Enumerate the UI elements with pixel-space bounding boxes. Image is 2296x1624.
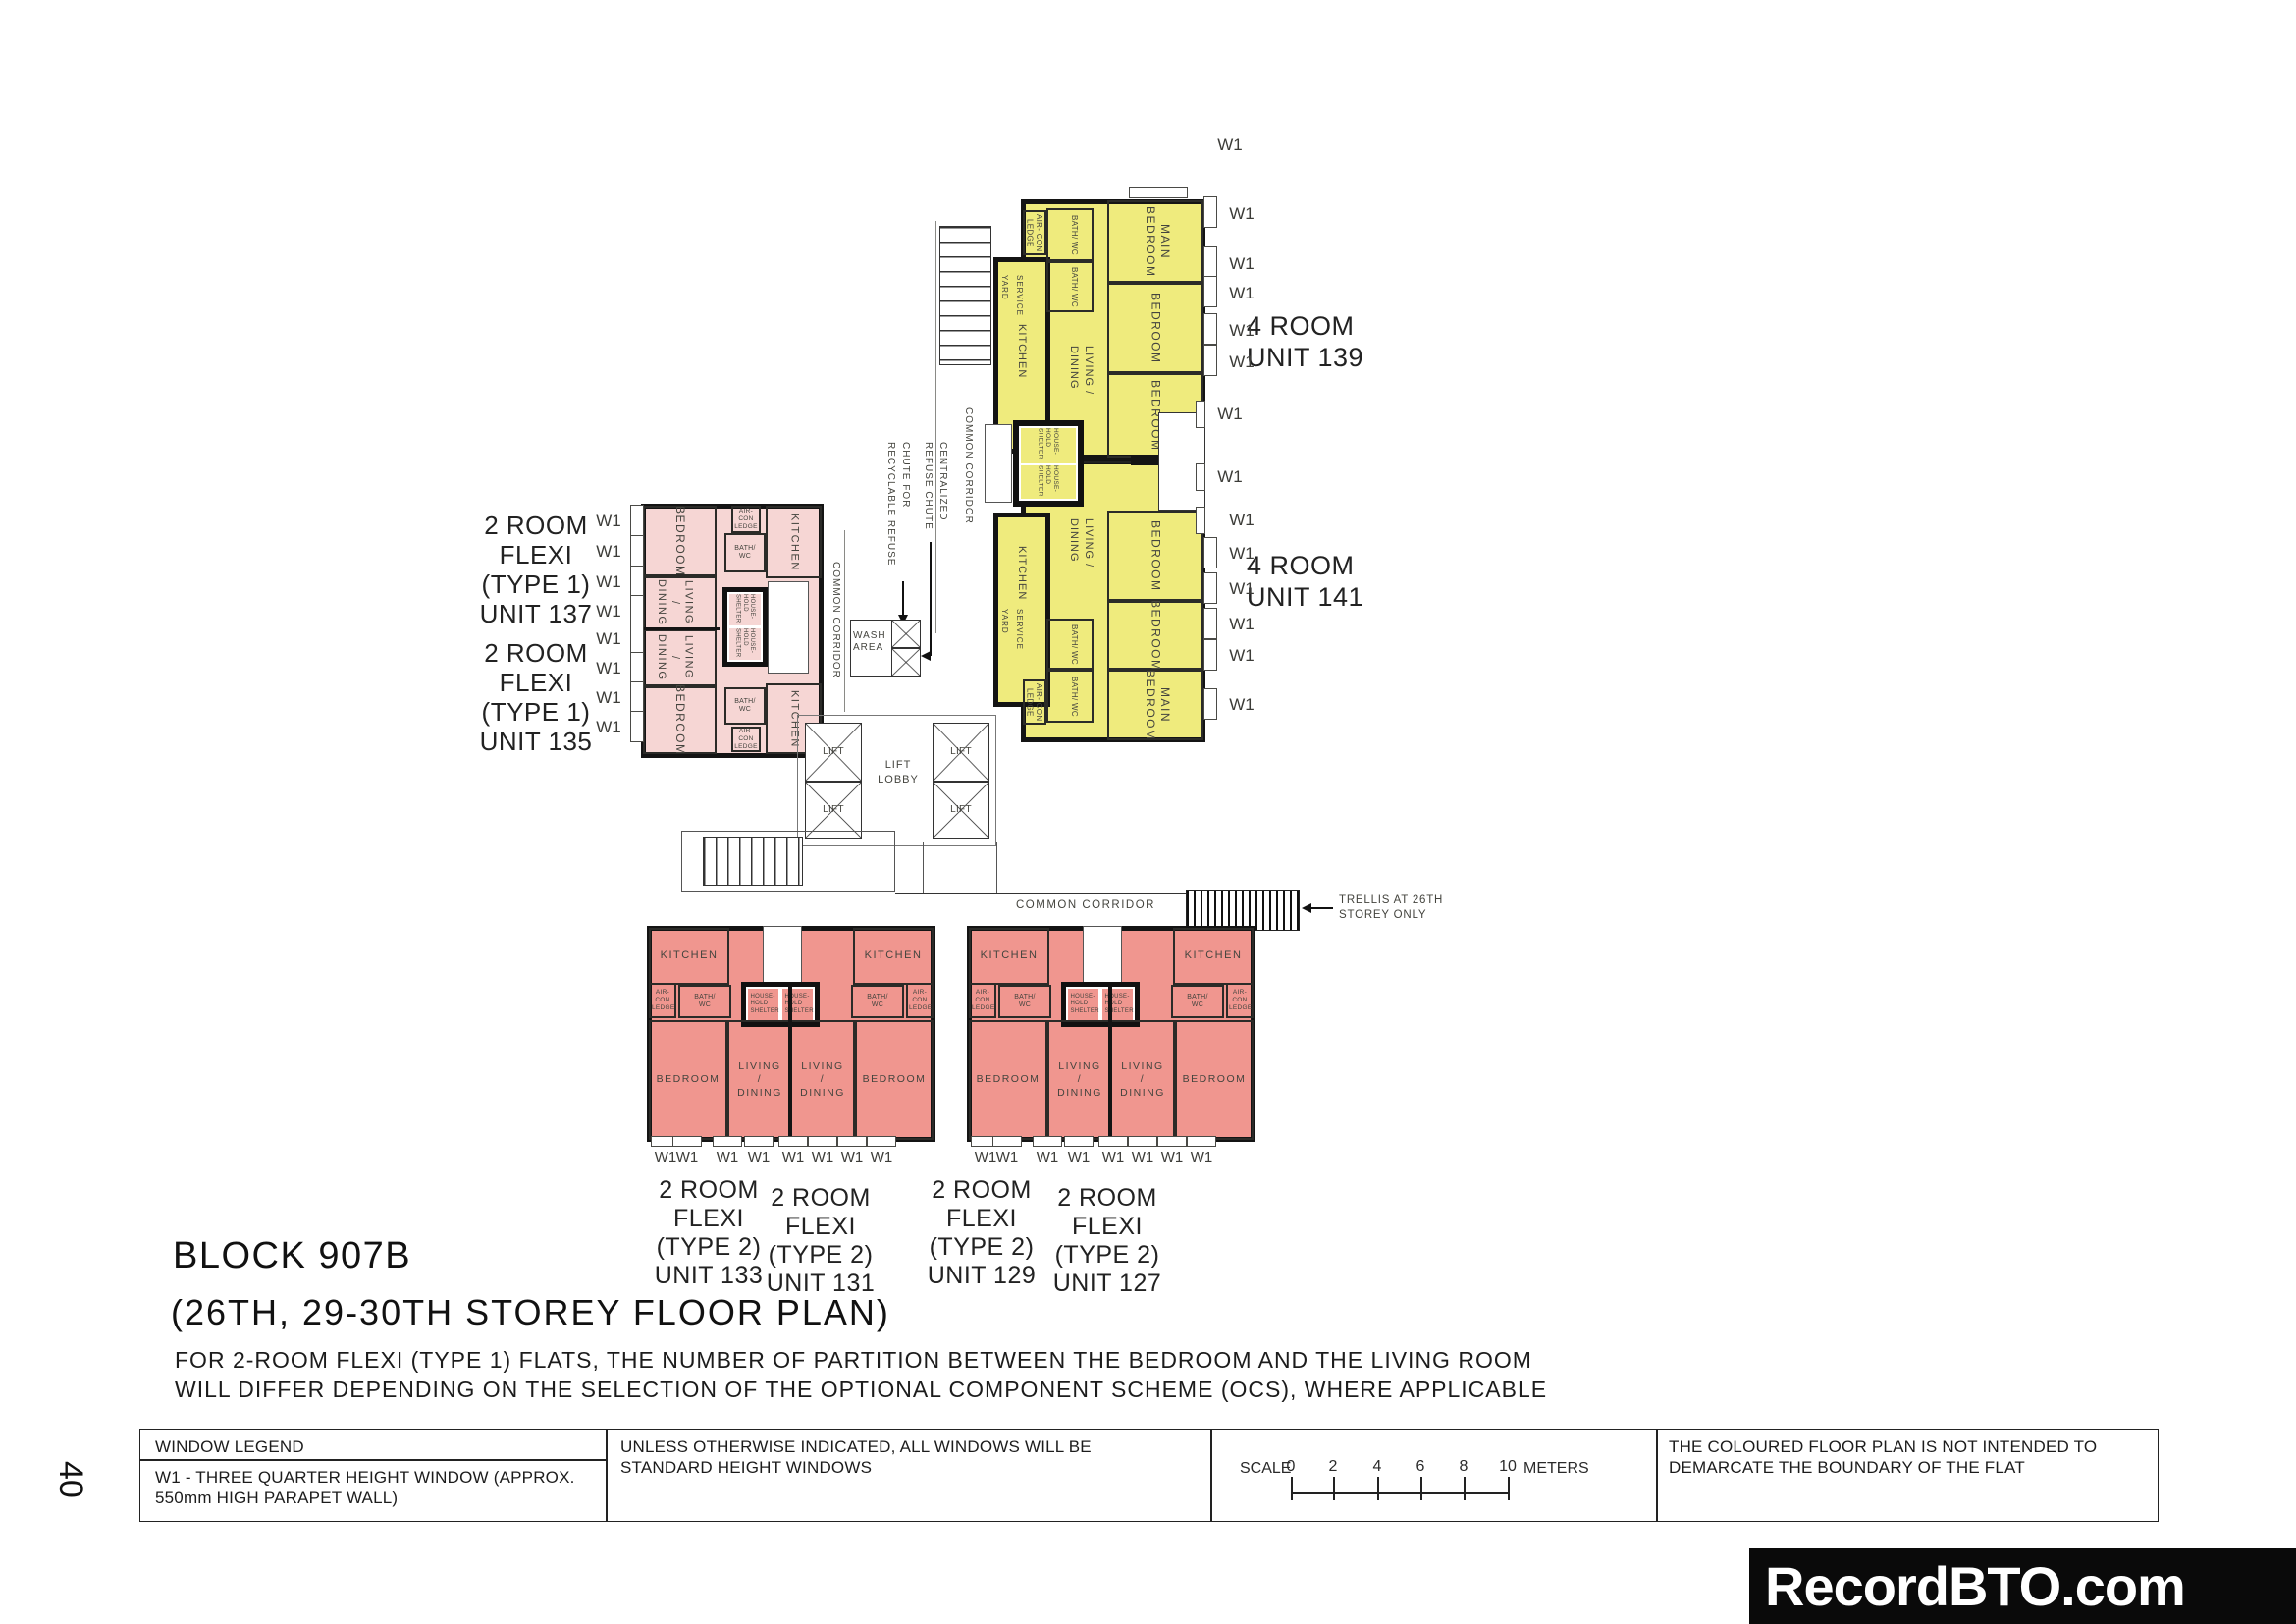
window-marker	[1203, 639, 1217, 671]
room-aircon-ledge: AIR- CON LEDGE	[1023, 679, 1046, 725]
wash-area-label: WASH AREA	[853, 630, 894, 654]
window-marker	[837, 1136, 867, 1147]
w1-label: W1	[1213, 405, 1247, 424]
scale-tick-10: 10	[1496, 1458, 1520, 1476]
household-shelter-label: HOUSE- HOLD SHELTER	[1071, 994, 1096, 1015]
room-kitchen: KITCHEN	[1173, 928, 1254, 985]
room-bedroom: BEDROOM	[1107, 511, 1203, 601]
scale-bar-tick	[1420, 1477, 1422, 1500]
unit-139-type: 4 ROOM	[1247, 310, 1363, 342]
legend-divider	[1210, 1429, 1212, 1522]
bedroom-label: BEDROOM	[863, 1073, 927, 1086]
w1-label: W1	[592, 718, 625, 737]
room-living-dining: LIVING / DINING	[643, 629, 717, 686]
window-marker	[1203, 688, 1217, 720]
bedroom-label: BEDROOM	[1148, 293, 1163, 364]
page-number: 40	[51, 1461, 89, 1498]
bath-wc-label: BATH/ WC	[1011, 994, 1039, 1010]
window-marker	[1203, 345, 1217, 376]
w1-label: W1	[1225, 352, 1258, 372]
window-marker	[1157, 1136, 1187, 1147]
w1-label: W1	[1213, 467, 1247, 487]
w1-label: W1	[1126, 1149, 1159, 1165]
w1-label: W1	[711, 1149, 744, 1165]
scale-bar-tick	[1464, 1477, 1466, 1500]
w1-label: W1	[1031, 1149, 1064, 1165]
unit-133-label: 2 ROOM FLEXI (TYPE 2) UNIT 133	[645, 1176, 773, 1290]
bath-wc-label: BATH/ WC	[864, 994, 891, 1010]
living-dining-label: LIVING / DINING	[1054, 1060, 1105, 1099]
trellis-arrow	[1302, 903, 1311, 913]
unit-133-l2: FLEXI	[645, 1205, 773, 1233]
lift-lobby-label: LIFT LOBBY	[868, 758, 929, 787]
lift-shaft: LIFT	[933, 723, 989, 782]
bedroom-label: BEDROOM	[1183, 1073, 1247, 1086]
w1-label: W1	[592, 688, 625, 708]
partition-line	[1084, 461, 1135, 463]
window-marker	[992, 1136, 1022, 1147]
unit-133-l1: 2 ROOM	[645, 1176, 773, 1205]
unit-133-l4: UNIT 133	[645, 1262, 773, 1290]
household-shelter-block: HOUSE- HOLD SHELTER HOUSE- HOLD SHELTER	[1013, 420, 1084, 507]
unit-137-l1: 2 ROOM	[461, 511, 611, 540]
household-shelter: HOUSE- HOLD SHELTER	[1021, 465, 1076, 499]
window-marker	[867, 1136, 896, 1147]
w1-label: W1	[592, 572, 625, 592]
w1-label: W1	[1225, 615, 1258, 634]
unit-137-l4: UNIT 137	[461, 599, 611, 628]
bedroom-label: BEDROOM	[1148, 600, 1163, 672]
kitchen-label: KITCHEN	[1007, 546, 1029, 609]
window-marker	[630, 535, 644, 567]
w1-label: W1	[1225, 284, 1258, 303]
household-shelter-label: HOUSE- HOLD SHELTER	[1038, 465, 1059, 499]
ocs-note-line2: WILL DIFFER DEPENDING ON THE SELECTION O…	[175, 1377, 1547, 1403]
household-shelter: HOUSE- HOLD SHELTER	[1021, 428, 1076, 463]
entry-recess	[1083, 926, 1122, 987]
w1-label: W1	[592, 659, 625, 678]
watermark-banner: RecordBTO.com	[1749, 1548, 2296, 1624]
room-kitchen: KITCHEN	[853, 928, 934, 985]
common-corridor-label: COMMON CORRIDOR	[1016, 899, 1158, 911]
lift-label: LIFT	[950, 746, 972, 758]
w1-label: W1	[865, 1149, 898, 1165]
household-shelter: HOUSE- HOLD SHELTER	[729, 594, 761, 625]
w1-label: W1	[835, 1149, 869, 1165]
aircon-ledge-label: AIR- CON LEDGE	[652, 989, 673, 1011]
w1-label: W1	[1062, 1149, 1095, 1165]
room-bedroom: BEDROOM	[855, 1020, 934, 1140]
window-marker	[1203, 196, 1217, 228]
window-marker	[630, 505, 644, 536]
room-bedroom: BEDROOM	[1107, 283, 1203, 373]
w1-label: W1	[990, 1149, 1024, 1165]
room-living-dining: LIVING / DINING	[727, 1020, 792, 1140]
unit-135-l4: UNIT 135	[461, 727, 611, 756]
room-living-dining: LIVING / DINING	[1047, 1020, 1112, 1140]
bedroom-label: BEDROOM	[1148, 520, 1163, 592]
window-marker	[808, 1136, 837, 1147]
household-shelter-label: HOUSE- HOLD SHELTER	[751, 994, 776, 1015]
bedroom-label: BEDROOM	[657, 1073, 721, 1086]
centralized-refuse-chute-label: CENTRALIZED REFUSE CHUTE	[919, 442, 950, 552]
unit-137-label: 2 ROOM FLEXI (TYPE 1) UNIT 137	[461, 511, 611, 628]
room-aircon-ledge: AIR- CON LEDGE	[731, 727, 761, 752]
window-marker	[1196, 401, 1205, 428]
household-shelter: HOUSE- HOLD SHELTER	[729, 628, 761, 660]
storey-title: (26TH, 29-30TH STOREY FLOOR PLAN)	[171, 1292, 890, 1333]
leader-arrow	[921, 651, 931, 661]
scale-tick-8: 8	[1454, 1458, 1473, 1476]
window-marker	[1203, 572, 1217, 604]
ocs-note-line1: FOR 2-ROOM FLEXI (TYPE 1) FLATS, THE NUM…	[175, 1347, 1532, 1374]
bedroom-label: BEDROOM	[672, 506, 687, 577]
room-bath-wc: BATH/ WC	[678, 985, 731, 1018]
corridor-link	[923, 842, 997, 894]
w1-label: W1	[592, 512, 625, 531]
room-aircon-ledge: AIR- CON LEDGE	[731, 506, 761, 533]
unit-141-label: 4 ROOM UNIT 141	[1247, 550, 1363, 613]
window-marker	[630, 652, 644, 683]
unit-139-number: UNIT 139	[1247, 342, 1363, 373]
aircon-ledge-label: AIR- CON LEDGE	[734, 728, 758, 750]
main-bedroom-label: MAIN BEDROOM	[1139, 670, 1172, 741]
legend-row-divider	[139, 1459, 607, 1461]
lift-shaft: LIFT	[933, 782, 989, 839]
corridor-line	[844, 530, 845, 712]
window-marker	[1203, 246, 1217, 278]
window-marker	[630, 623, 644, 654]
household-shelter: HOUSE- HOLD SHELTER	[1102, 989, 1133, 1020]
living-dining-label: LIVING / DINING	[1066, 518, 1095, 589]
household-shelter: HOUSE- HOLD SHELTER	[782, 989, 813, 1020]
window-marker	[778, 1136, 808, 1147]
w1-label: W1	[1225, 511, 1258, 530]
room-aircon-ledge: AIR- CON LEDGE	[906, 983, 934, 1018]
window-marker	[1203, 276, 1217, 307]
coloured-plan-note: THE COLOURED FLOOR PLAN IS NOT INTENDED …	[1669, 1436, 2120, 1478]
scale-tick-6: 6	[1411, 1458, 1430, 1476]
floor-plan-page: { "title": { "block": "BLOCK 907B", "sto…	[0, 0, 2296, 1624]
unit-129-l4: UNIT 129	[918, 1262, 1045, 1290]
trellis	[1186, 890, 1300, 931]
w1-label: W1	[1096, 1149, 1130, 1165]
w1-description: W1 - THREE QUARTER HEIGHT WINDOW (APPROX…	[155, 1467, 616, 1508]
window-marker	[1203, 313, 1217, 345]
unit-135-l1: 2 ROOM	[461, 638, 611, 668]
common-corridor-label: COMMON CORRIDOR	[960, 407, 976, 540]
trellis-note: TRELLIS AT 26TH STOREY ONLY	[1339, 893, 1486, 923]
unit-127-label: 2 ROOM FLEXI (TYPE 2) UNIT 127	[1043, 1184, 1171, 1298]
bath-wc-label: BATH/ WC	[1061, 267, 1079, 307]
w1-label: W1	[1185, 1149, 1218, 1165]
room-kitchen: KITCHEN	[969, 928, 1049, 985]
room-bedroom: BEDROOM	[643, 686, 717, 754]
room-kitchen: KITCHEN	[766, 506, 822, 578]
window-marker	[630, 681, 644, 713]
room-aircon-ledge: AIR- CON LEDGE	[969, 983, 996, 1018]
room-aircon-ledge: AIR- CON LEDGE	[1023, 210, 1046, 255]
leader-line	[930, 542, 932, 656]
household-shelter-label: HOUSE- HOLD SHELTER	[735, 628, 755, 660]
unit-127-l2: FLEXI	[1043, 1213, 1171, 1241]
unit-131-label: 2 ROOM FLEXI (TYPE 2) UNIT 131	[757, 1184, 884, 1298]
scale-bar-tick	[1291, 1477, 1293, 1500]
window-marker	[630, 711, 644, 742]
window-marker	[1129, 187, 1188, 198]
room-bath-wc: BATH/ WC	[1046, 208, 1094, 261]
bath-wc-label: BATH/ WC	[691, 994, 719, 1010]
service-yard-label: SERVICE YARD	[1005, 275, 1027, 322]
aircon-ledge-label: AIR- CON LEDGE	[1026, 681, 1043, 723]
trellis-leader	[1311, 907, 1333, 909]
corridor-line	[895, 893, 1188, 894]
unit-131-l2: FLEXI	[757, 1213, 884, 1241]
main-bedroom-label: MAIN BEDROOM	[1139, 202, 1172, 281]
w1-label: W1	[806, 1149, 839, 1165]
kitchen-label: KITCHEN	[981, 949, 1039, 963]
w1-label: W1	[592, 602, 625, 622]
unit-127-l1: 2 ROOM	[1043, 1184, 1171, 1213]
window-marker	[713, 1136, 742, 1147]
scale-bar-line	[1291, 1492, 1509, 1494]
room-bath-wc: BATH/ WC	[1046, 619, 1094, 670]
window-marker	[1187, 1136, 1216, 1147]
room-kitchen: KITCHEN	[649, 928, 729, 985]
room-bath-wc: BATH/ WC	[1171, 985, 1224, 1018]
unit-135-l2: FLEXI	[461, 668, 611, 697]
unit-141-number: UNIT 141	[1247, 581, 1363, 613]
unit-129-label: 2 ROOM FLEXI (TYPE 2) UNIT 129	[918, 1176, 1045, 1290]
unit-135-label: 2 ROOM FLEXI (TYPE 1) UNIT 135	[461, 638, 611, 756]
kitchen-label: KITCHEN	[787, 514, 801, 571]
bath-wc-label: BATH/ WC	[1184, 994, 1211, 1010]
scale-bar-tick	[1508, 1477, 1510, 1500]
aircon-ledge-label: AIR- CON LEDGE	[734, 508, 758, 530]
w1-label: W1	[670, 1149, 704, 1165]
room-main-bedroom: MAIN BEDROOM	[1107, 200, 1203, 283]
scale-bar-tick	[1377, 1477, 1379, 1500]
room-bedroom: BEDROOM	[643, 506, 717, 576]
household-shelter-label: HOUSE- HOLD SHELTER	[1038, 428, 1059, 463]
watermark-text: RecordBTO.com	[1749, 1554, 2185, 1618]
w1-label: W1	[1225, 579, 1258, 599]
w1-label: W1	[1225, 646, 1258, 666]
unit-135-l3: (TYPE 1)	[461, 697, 611, 727]
household-shelter: HOUSE- HOLD SHELTER	[748, 989, 778, 1020]
w1-label: W1	[1213, 135, 1247, 155]
room-bath-wc: BATH/ WC	[1046, 261, 1094, 312]
window-marker	[672, 1136, 702, 1147]
window-marker	[1203, 537, 1217, 568]
bedroom-label: BEDROOM	[977, 1073, 1041, 1086]
unit-141-type: 4 ROOM	[1247, 550, 1363, 581]
window-marker	[1196, 507, 1205, 534]
lift-label: LIFT	[823, 804, 844, 816]
window-marker	[1064, 1136, 1094, 1147]
kitchen-label: KITCHEN	[1185, 949, 1243, 963]
scale-tick-2: 2	[1323, 1458, 1343, 1476]
refuse-chute-cell	[891, 620, 921, 648]
room-living-dining: LIVING / DINING	[790, 1020, 855, 1140]
unit-131-l3: (TYPE 2)	[757, 1241, 884, 1270]
window-marker	[744, 1136, 774, 1147]
room-bath-wc: BATH/ WC	[724, 687, 766, 725]
room-bedroom: BEDROOM	[969, 1020, 1047, 1140]
room-bath-wc: BATH/ WC	[724, 533, 766, 572]
room-main-bedroom: MAIN BEDROOM	[1107, 670, 1203, 740]
unit-127-l3: (TYPE 2)	[1043, 1241, 1171, 1270]
bath-wc-label: BATH/ WC	[732, 545, 758, 562]
unit-137-l3: (TYPE 1)	[461, 569, 611, 599]
window-marker	[1203, 608, 1217, 639]
kitchen-label: KITCHEN	[865, 949, 923, 963]
aircon-ledge-label: AIR- CON LEDGE	[1229, 989, 1251, 1011]
unit-139-label: 4 ROOM UNIT 139	[1247, 310, 1363, 373]
room-living-dining: LIVING / DINING	[643, 576, 717, 629]
w1-label: W1	[1155, 1149, 1189, 1165]
scale-tick-0: 0	[1281, 1458, 1301, 1476]
w1-label: W1	[1225, 544, 1258, 564]
household-shelter-label: HOUSE- HOLD SHELTER	[735, 594, 755, 625]
leader-line	[902, 581, 904, 615]
living-dining-label: LIVING / DINING	[666, 578, 695, 627]
window-legend-title: WINDOW LEGEND	[155, 1436, 450, 1457]
room-aircon-ledge: AIR- CON LEDGE	[649, 983, 676, 1018]
room-bedroom: BEDROOM	[1107, 601, 1203, 670]
unit-137-l2: FLEXI	[461, 540, 611, 569]
household-shelter: HOUSE- HOLD SHELTER	[1068, 989, 1098, 1020]
room-bedroom: BEDROOM	[1175, 1020, 1254, 1140]
entry-recess	[768, 581, 809, 674]
bedroom-label: BEDROOM	[672, 684, 687, 756]
household-shelter-block: HOUSE- HOLD SHELTER HOUSE- HOLD SHELTER	[722, 587, 768, 667]
w1-label: W1	[1225, 254, 1258, 274]
w1-label: W1	[776, 1149, 810, 1165]
aircon-ledge-label: AIR- CON LEDGE	[909, 989, 931, 1011]
bath-wc-label: BATH/ WC	[732, 698, 758, 715]
service-yard-label: SERVICE YARD	[1005, 609, 1027, 656]
lift-label: LIFT	[823, 746, 844, 758]
block-title: BLOCK 907B	[173, 1235, 411, 1277]
refuse-chute-cell	[891, 648, 921, 677]
room-bath-wc: BATH/ WC	[851, 985, 904, 1018]
window-marker	[630, 566, 644, 597]
window-marker	[1098, 1136, 1128, 1147]
bath-wc-label: BATH/ WC	[1061, 677, 1079, 717]
corridor-recess	[985, 424, 1012, 503]
w1-label: W1	[592, 542, 625, 562]
party-wall	[643, 627, 720, 630]
living-dining-label: LIVING / DINING	[797, 1060, 848, 1099]
window-marker	[1033, 1136, 1062, 1147]
scale-tick-4: 4	[1367, 1458, 1387, 1476]
corridor-line	[935, 221, 936, 633]
lift-label: LIFT	[950, 804, 972, 816]
w1-label: W1	[592, 629, 625, 649]
aircon-ledge-label: AIR- CON LEDGE	[972, 989, 993, 1011]
room-living-dining: LIVING / DINING	[1110, 1020, 1175, 1140]
common-corridor-label: COMMON CORRIDOR	[828, 562, 843, 679]
living-dining-label: LIVING / DINING	[734, 1060, 785, 1099]
aircon-ledge-label: AIR- CON LEDGE	[1026, 212, 1043, 253]
unit-127-l4: UNIT 127	[1043, 1270, 1171, 1298]
scale-bar-tick	[1333, 1477, 1335, 1500]
staircase	[703, 837, 803, 886]
living-dining-label: LIVING / DINING	[666, 631, 695, 684]
party-wall	[1108, 987, 1112, 1142]
window-marker	[1128, 1136, 1157, 1147]
unit-133-l3: (TYPE 2)	[645, 1233, 773, 1262]
w1-label: W1	[1225, 321, 1258, 341]
standard-window-note: UNLESS OTHERWISE INDICATED, ALL WINDOWS …	[620, 1436, 1150, 1478]
staircase	[939, 226, 991, 365]
unit-129-l2: FLEXI	[918, 1205, 1045, 1233]
room-aircon-ledge: AIR- CON LEDGE	[1226, 983, 1254, 1018]
unit-131-l1: 2 ROOM	[757, 1184, 884, 1213]
unit-129-l1: 2 ROOM	[918, 1176, 1045, 1205]
scale-unit: METERS	[1523, 1460, 1589, 1478]
kitchen-label: KITCHEN	[661, 949, 719, 963]
room-bath-wc: BATH/ WC	[998, 985, 1051, 1018]
living-dining-label: LIVING / DINING	[1066, 346, 1095, 416]
bath-wc-label: BATH/ WC	[1061, 624, 1079, 665]
room-bath-wc: BATH/ WC	[1046, 670, 1094, 723]
w1-label: W1	[742, 1149, 775, 1165]
kitchen-label: KITCHEN	[1007, 324, 1029, 387]
room-bedroom: BEDROOM	[649, 1020, 727, 1140]
party-wall	[788, 987, 792, 1142]
entry-recess	[763, 926, 802, 987]
window-marker	[1196, 463, 1205, 491]
w1-label: W1	[1225, 204, 1258, 224]
legend-divider	[1656, 1429, 1658, 1522]
bath-wc-label: BATH/ WC	[1061, 215, 1079, 255]
w1-label: W1	[1225, 695, 1258, 715]
living-dining-label: LIVING / DINING	[1117, 1060, 1168, 1099]
recyclable-refuse-chute-label: CHUTE FOR RECYCLABLE REFUSE	[866, 442, 913, 579]
unit-129-l3: (TYPE 2)	[918, 1233, 1045, 1262]
lift-shaft: LIFT	[805, 723, 862, 782]
